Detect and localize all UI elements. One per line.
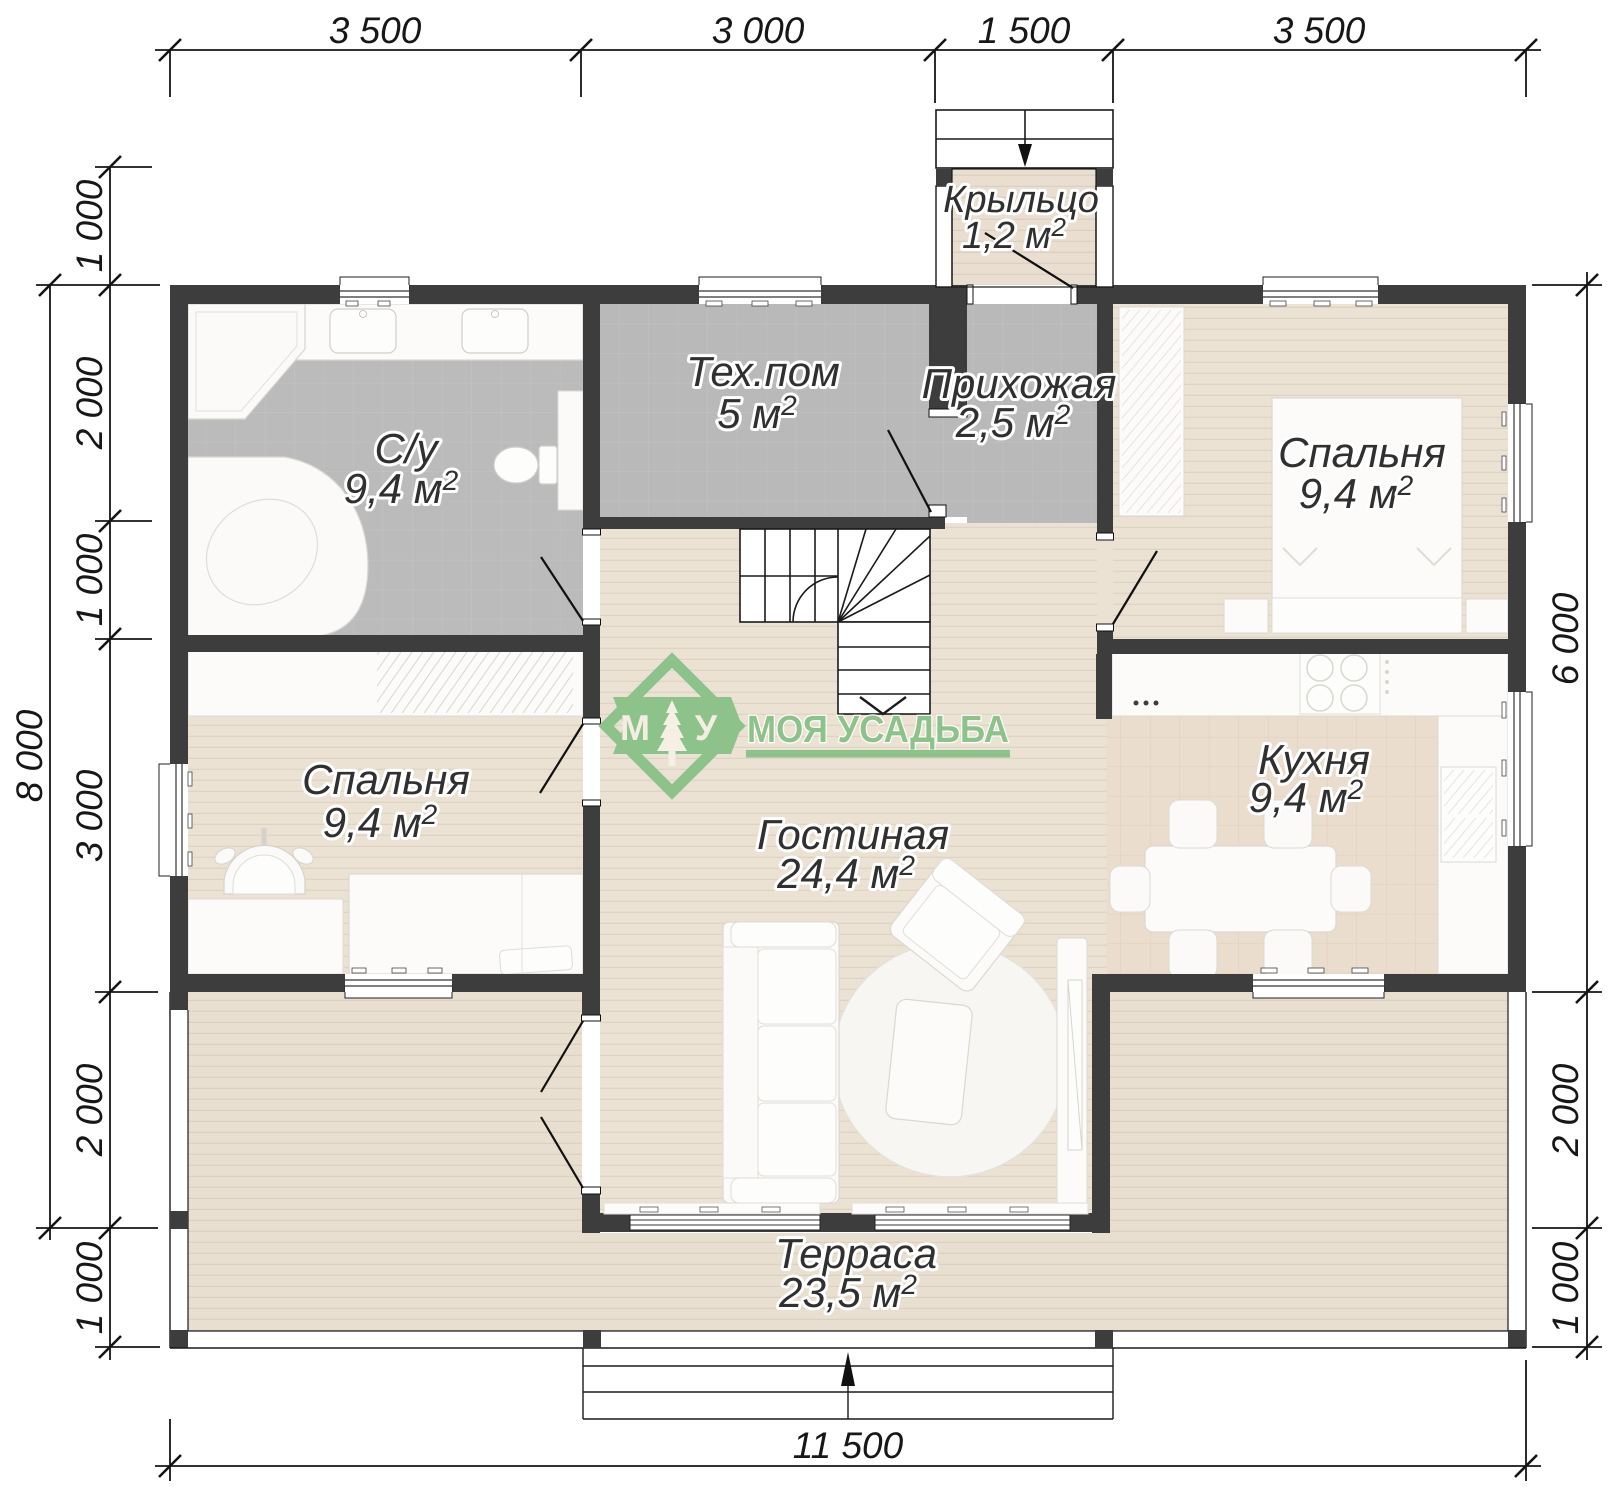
svg-text:1 000: 1 000 [69,1241,110,1334]
svg-text:У: У [695,707,718,748]
svg-text:3 500: 3 500 [1273,10,1366,51]
svg-text:23,5 м2: 23,5 м2 [778,1269,917,1316]
svg-text:1,2 м2: 1,2 м2 [962,212,1066,257]
svg-text:2 000: 2 000 [1545,1063,1586,1157]
svg-text:Спальня: Спальня [302,756,470,803]
svg-text:Спальня: Спальня [1278,429,1446,476]
svg-text:6 000: 6 000 [1545,592,1586,685]
svg-text:2 000: 2 000 [69,356,110,450]
svg-text:11 500: 11 500 [793,1425,904,1466]
svg-text:9,4 м2: 9,4 м2 [1249,774,1364,821]
svg-text:24,4 м2: 24,4 м2 [776,850,915,897]
svg-text:1 500: 1 500 [978,10,1071,51]
svg-text:МОЯ УСАДЬБА: МОЯ УСАДЬБА [747,709,1009,751]
svg-text:3 000: 3 000 [69,769,110,862]
svg-text:Тех.пом: Тех.пом [686,348,840,395]
svg-text:1 000: 1 000 [1545,1241,1586,1334]
svg-text:3 000: 3 000 [712,10,805,51]
svg-text:М: М [620,707,650,748]
svg-text:1 000: 1 000 [69,533,110,626]
svg-text:8 000: 8 000 [9,709,50,802]
svg-text:2,5 м2: 2,5 м2 [955,399,1071,446]
svg-text:9,4 м2: 9,4 м2 [1299,470,1414,517]
svg-text:2 000: 2 000 [69,1063,110,1157]
svg-text:3 500: 3 500 [329,10,422,51]
svg-text:1 000: 1 000 [69,179,110,272]
svg-text:9,4 м2: 9,4 м2 [344,465,459,512]
svg-text:9,4 м2: 9,4 м2 [323,799,438,846]
